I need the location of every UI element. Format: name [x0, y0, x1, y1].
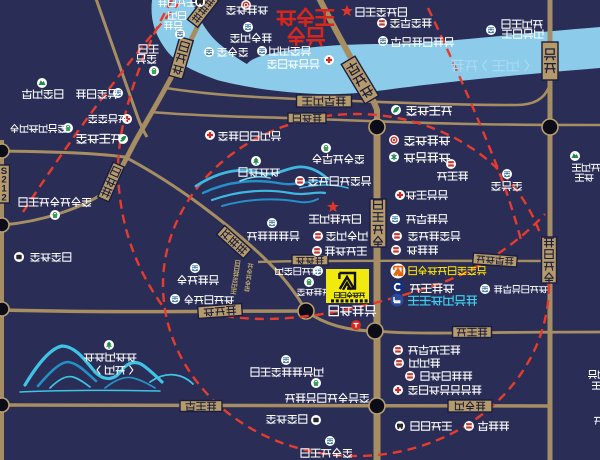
svg-text:2: 2 — [1, 193, 6, 204]
